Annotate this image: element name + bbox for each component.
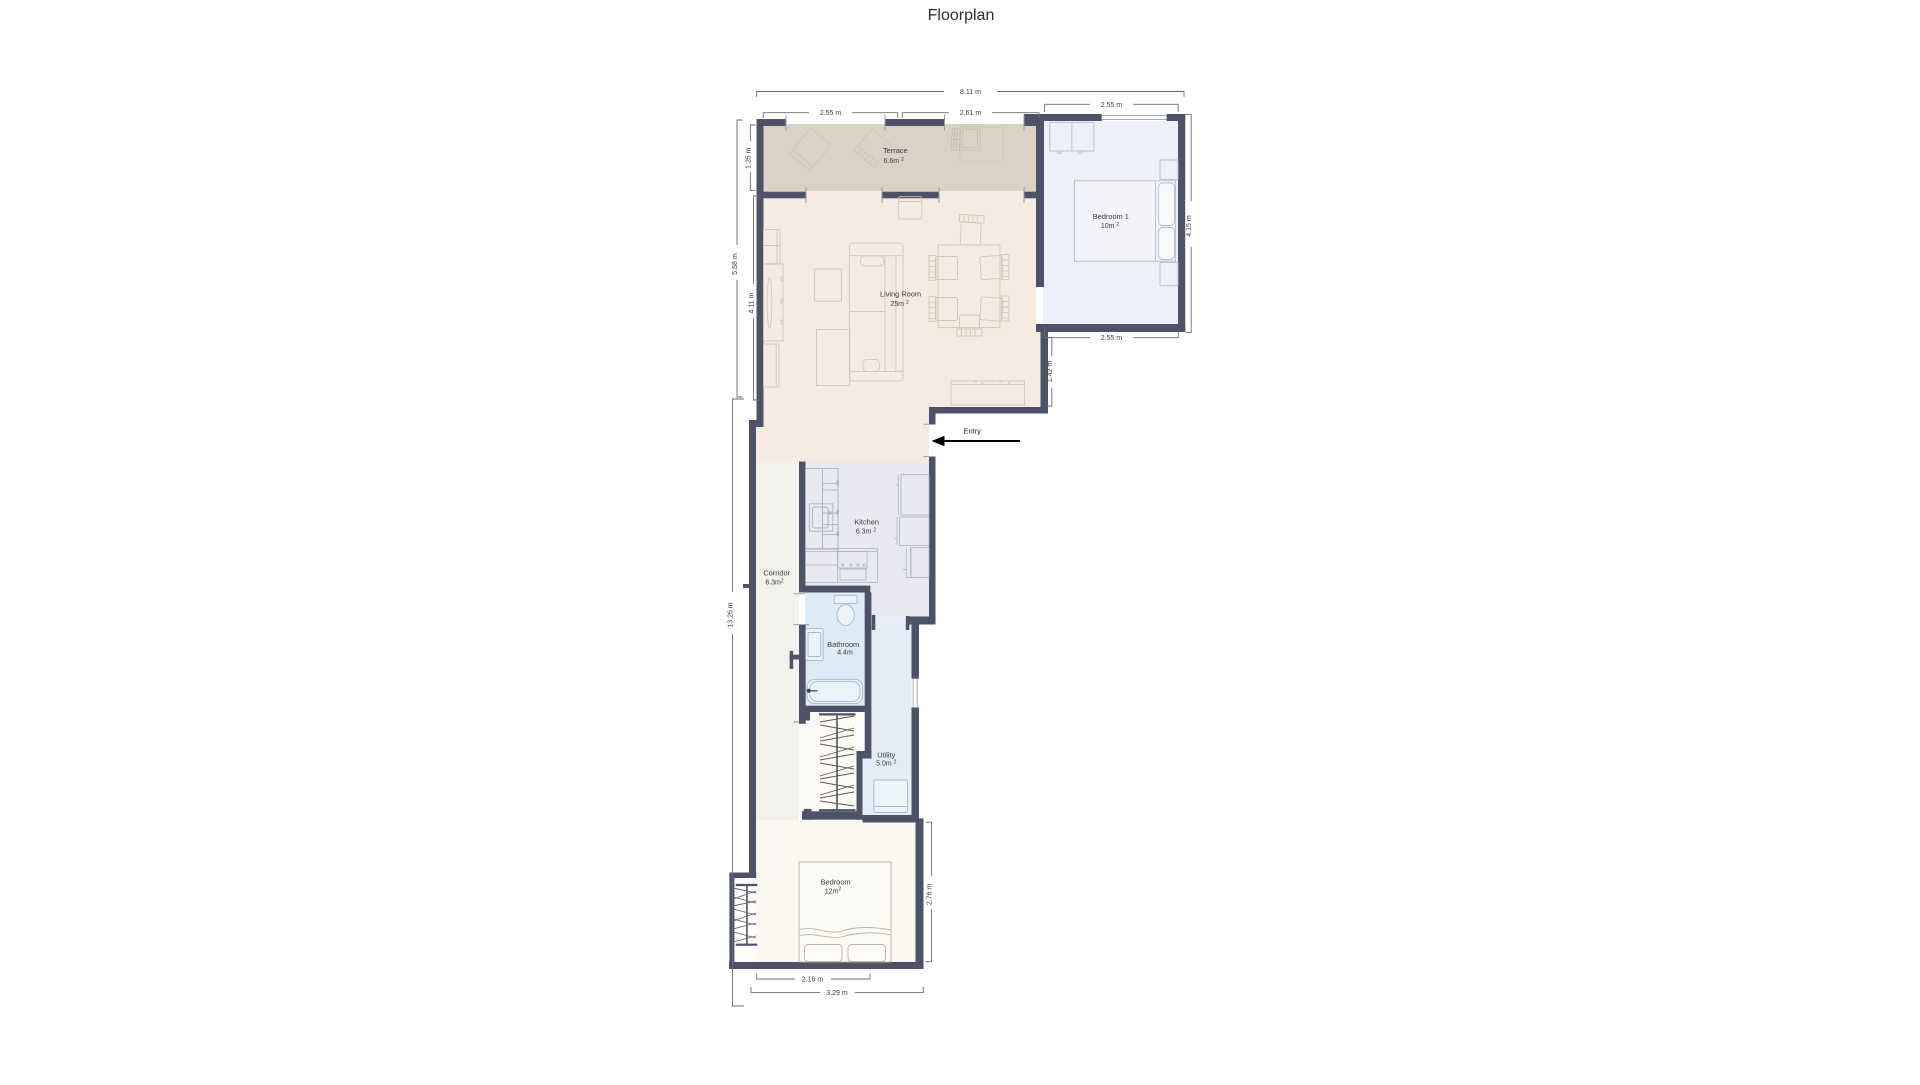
svg-text:13.26 m: 13.26 m: [728, 602, 735, 627]
svg-text:2.16 m: 2.16 m: [802, 977, 824, 984]
svg-text:2.61 m: 2.61 m: [960, 110, 982, 117]
svg-text:2.55 m: 2.55 m: [820, 110, 842, 117]
svg-text:Bedroom: Bedroom: [821, 878, 851, 887]
svg-text:Corridor: Corridor: [763, 569, 790, 578]
svg-text:Floorplan: Floorplan: [928, 7, 995, 24]
svg-text:5.0m 2: 5.0m 2: [876, 760, 897, 768]
svg-text:3.29 m: 3.29 m: [826, 990, 848, 997]
svg-text:4.11 m: 4.11 m: [749, 292, 756, 313]
svg-text:8.11 m: 8.11 m: [960, 89, 981, 96]
svg-text:Entry: Entry: [964, 427, 982, 436]
svg-text:5.58 m: 5.58 m: [732, 253, 739, 275]
svg-text:Kitchen: Kitchen: [854, 518, 879, 527]
svg-text:Bathroom: Bathroom: [827, 640, 859, 649]
svg-text:Terrace: Terrace: [883, 146, 908, 155]
svg-text:6.6m 2: 6.6m 2: [884, 157, 905, 165]
svg-text:1.25 m: 1.25 m: [745, 147, 752, 169]
svg-text:Bedroom 1: Bedroom 1: [1093, 212, 1129, 221]
svg-text:2.76 m: 2.76 m: [926, 884, 933, 906]
svg-text:2.55 m: 2.55 m: [1101, 335, 1123, 342]
svg-text:Utility: Utility: [877, 751, 895, 760]
svg-text:4.4m: 4.4m: [837, 650, 853, 657]
svg-text:Living Room: Living Room: [880, 290, 921, 299]
svg-text:4.15 m: 4.15 m: [1186, 215, 1193, 237]
svg-text:6.3m 2: 6.3m 2: [856, 527, 877, 535]
svg-text:1.42 m: 1.42 m: [1047, 361, 1054, 383]
svg-text:2.55 m: 2.55 m: [1101, 102, 1123, 109]
